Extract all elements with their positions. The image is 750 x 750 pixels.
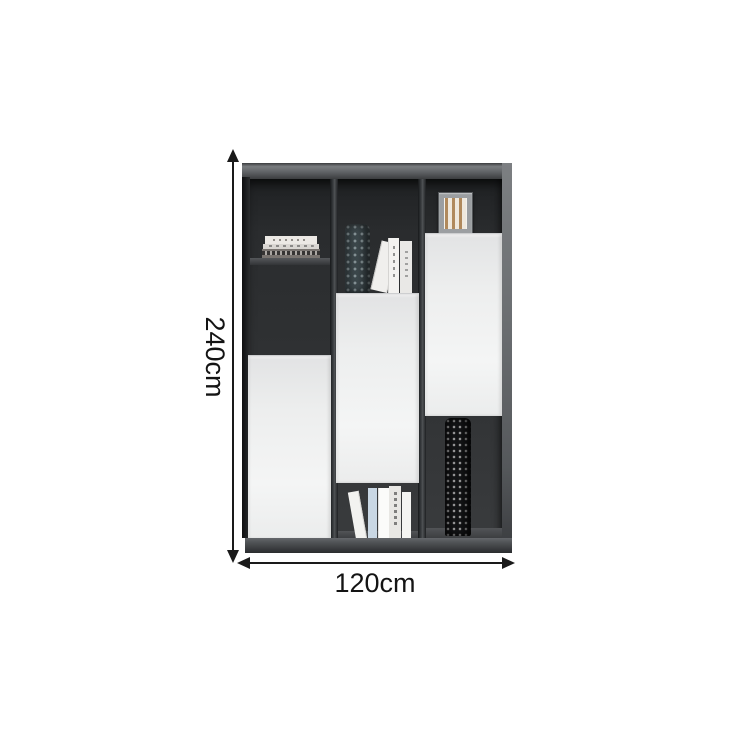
book-spine — [400, 241, 412, 293]
picture-frame — [438, 192, 473, 235]
right-door — [425, 233, 502, 416]
teal-pattern-vase — [345, 224, 370, 293]
cabinet — [242, 163, 512, 553]
cabinet-base-plinth — [245, 538, 512, 553]
horizontal-book — [262, 249, 320, 258]
bottom-shelf-books — [354, 486, 414, 538]
book-spine — [388, 238, 399, 293]
upright-books — [388, 238, 414, 293]
height-dimension-line — [232, 160, 234, 552]
height-dimension-label: 240cm — [200, 310, 230, 404]
width-dimension-label: 120cm — [325, 568, 425, 598]
middle-door — [336, 293, 419, 483]
arrow-right-icon — [502, 557, 515, 569]
width-dimension-line — [244, 562, 508, 564]
book-spine — [389, 486, 401, 538]
picture-frame-art — [445, 198, 466, 229]
book-spine — [368, 488, 377, 538]
left-column-shelf — [250, 258, 330, 265]
cabinet-right-side — [502, 163, 512, 553]
arrow-up-icon — [227, 149, 239, 162]
cabinet-top-face — [242, 163, 512, 179]
stacked-books — [262, 236, 320, 258]
cabinet-interior — [250, 179, 502, 538]
book-spine — [402, 492, 411, 538]
left-door — [248, 355, 331, 539]
horizontal-book — [265, 236, 316, 244]
arrow-left-icon — [237, 557, 250, 569]
black-pattern-vase — [445, 418, 471, 536]
book-spine — [378, 488, 389, 538]
